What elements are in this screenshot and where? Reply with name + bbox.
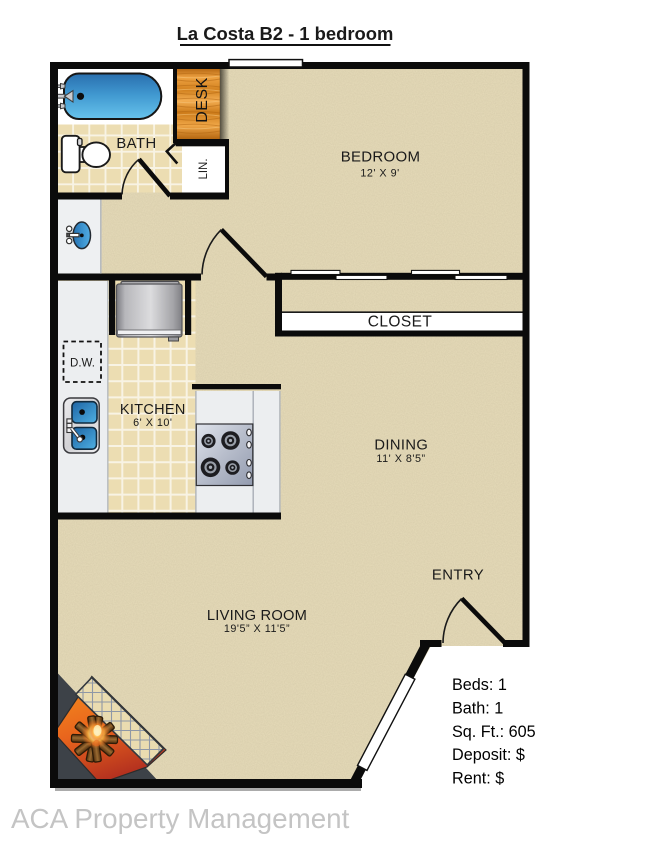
svg-text:11' X 8'5”: 11' X 8'5”: [376, 453, 425, 465]
svg-text:LIVING ROOM: LIVING ROOM: [207, 608, 307, 624]
svg-text:CLOSET: CLOSET: [368, 314, 433, 331]
svg-text:6' X 10': 6' X 10': [133, 417, 172, 429]
svg-text:D.W.: D.W.: [70, 358, 95, 370]
svg-text:Rent: $: Rent: $: [452, 770, 504, 788]
svg-text:ENTRY: ENTRY: [432, 568, 484, 584]
svg-text:12' X 9': 12' X 9': [360, 168, 399, 180]
svg-text:19'5” X 11'5”: 19'5” X 11'5”: [224, 623, 290, 635]
svg-text:BEDROOM: BEDROOM: [341, 149, 421, 166]
svg-text:DESK: DESK: [194, 77, 211, 123]
svg-text:Sq. Ft.: 605: Sq. Ft.: 605: [452, 723, 536, 741]
svg-text:Beds: 1: Beds: 1: [452, 676, 507, 694]
svg-text:La Costa B2 - 1 bedroom: La Costa B2 - 1 bedroom: [177, 23, 394, 44]
svg-text:KITCHEN: KITCHEN: [120, 402, 186, 418]
svg-text:Bath: 1: Bath: 1: [452, 699, 503, 717]
svg-text:DINING: DINING: [374, 438, 428, 454]
svg-text:BATH: BATH: [116, 136, 156, 152]
svg-text:ACA Property Management: ACA Property Management: [11, 803, 350, 834]
svg-text:LIN.: LIN.: [198, 158, 210, 179]
svg-text:Deposit: $: Deposit: $: [452, 746, 525, 764]
